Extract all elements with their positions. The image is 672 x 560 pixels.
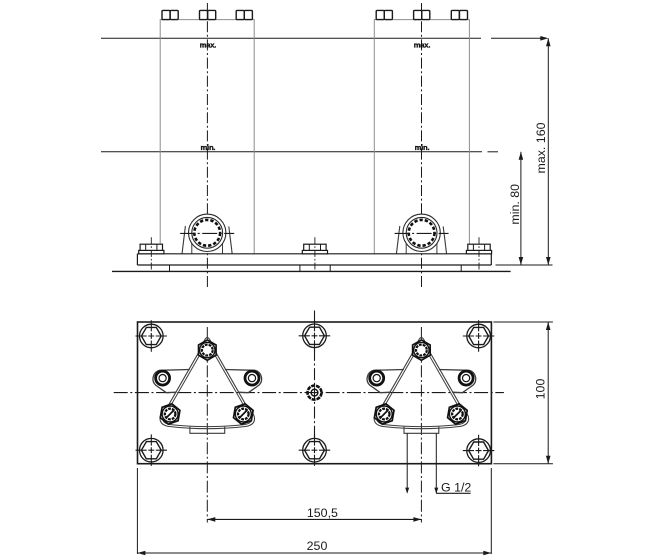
- svg-text:max.: max.: [200, 41, 217, 50]
- svg-text:min.: min.: [200, 143, 215, 152]
- svg-text:min. 80: min. 80: [508, 184, 522, 225]
- svg-text:250: 250: [307, 539, 328, 553]
- svg-text:max.: max.: [414, 41, 431, 50]
- svg-text:min.: min.: [415, 143, 430, 152]
- svg-text:150,5: 150,5: [307, 506, 338, 520]
- svg-text:G 1/2: G 1/2: [441, 481, 471, 495]
- svg-text:100: 100: [533, 379, 547, 400]
- svg-text:max. 160: max. 160: [534, 122, 548, 173]
